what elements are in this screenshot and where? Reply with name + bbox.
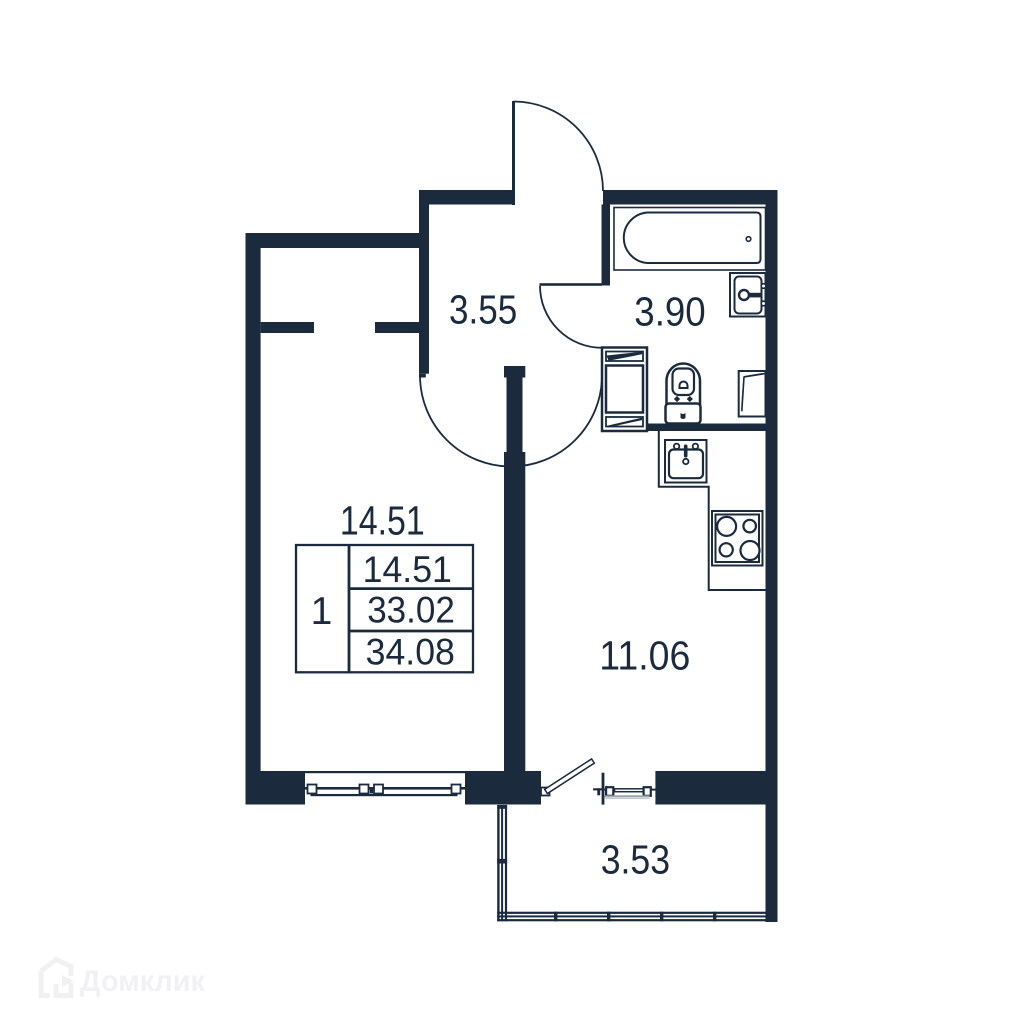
svg-text:11.06: 11.06 bbox=[599, 633, 690, 679]
svg-text:1: 1 bbox=[311, 590, 333, 633]
svg-text:Домклик: Домклик bbox=[80, 965, 206, 998]
svg-text:3.55: 3.55 bbox=[449, 287, 517, 333]
svg-text:3.53: 3.53 bbox=[601, 837, 670, 883]
svg-text:14.51: 14.51 bbox=[340, 498, 425, 544]
svg-text:14.51: 14.51 bbox=[363, 549, 452, 590]
svg-text:33.02: 33.02 bbox=[367, 590, 455, 631]
svg-text:3.90: 3.90 bbox=[634, 289, 705, 335]
svg-text:34.08: 34.08 bbox=[366, 632, 455, 673]
